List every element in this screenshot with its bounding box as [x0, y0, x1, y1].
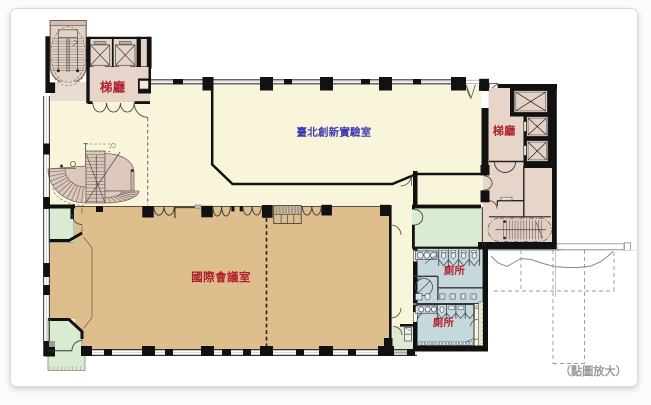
svg-text:（點圖放大）: （點圖放大） [560, 364, 627, 378]
svg-text:臺北創新實驗室: 臺北創新實驗室 [297, 125, 372, 138]
svg-text:廁所: 廁所 [444, 264, 466, 277]
svg-text:國際會議室: 國際會議室 [191, 270, 251, 284]
svg-text:梯廳: 梯廳 [100, 80, 126, 95]
svg-text:梯廳: 梯廳 [493, 124, 516, 138]
svg-text:廁所: 廁所 [433, 316, 455, 329]
